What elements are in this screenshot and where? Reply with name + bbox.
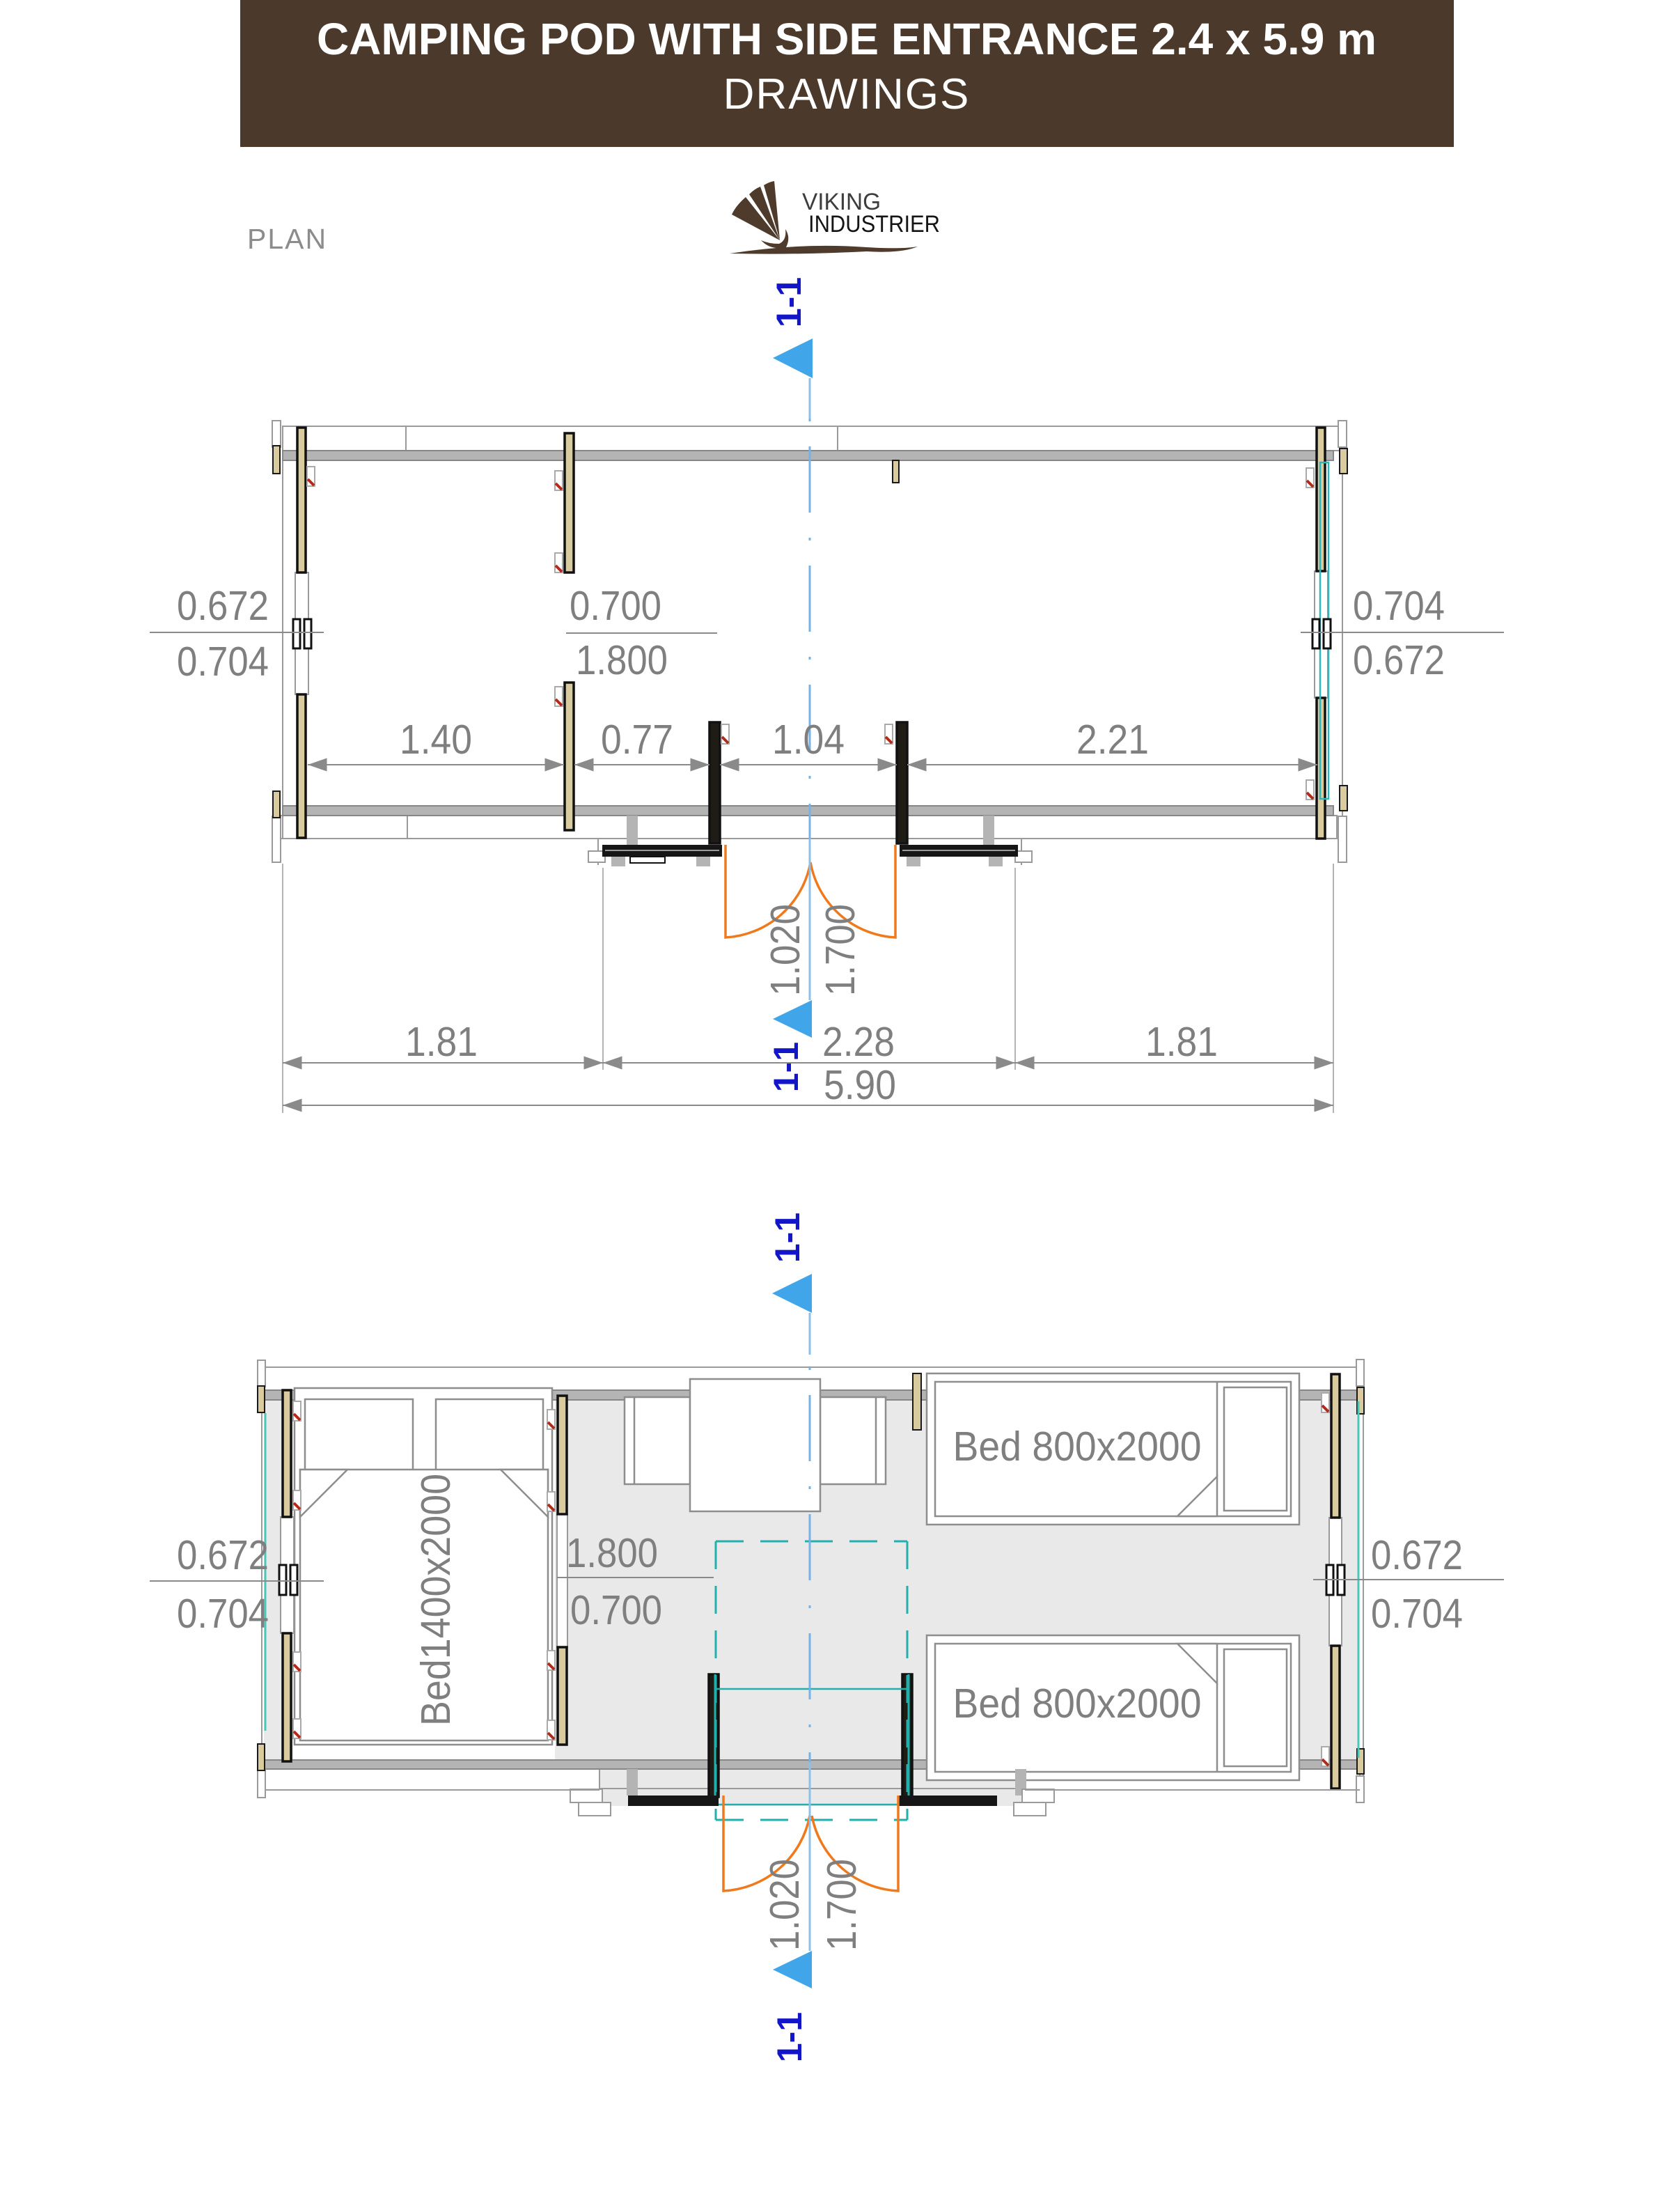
svg-text:2.28: 2.28 [822,1019,895,1065]
svg-text:2.21: 2.21 [1076,717,1149,763]
svg-text:5.90: 5.90 [824,1062,896,1108]
svg-text:1.81: 1.81 [1145,1019,1218,1065]
svg-text:1-1: 1-1 [767,1042,806,1092]
svg-text:0.704: 0.704 [1371,1591,1463,1637]
svg-text:0.704: 0.704 [177,639,269,685]
svg-text:0.672: 0.672 [1353,637,1445,683]
svg-text:0.704: 0.704 [177,1591,269,1637]
svg-text:1.800: 1.800 [566,1530,658,1576]
svg-text:PLAN: PLAN [247,223,327,255]
svg-text:1.800: 1.800 [576,637,668,683]
svg-text:0.672: 0.672 [177,1532,269,1578]
svg-text:Bed 800x2000: Bed 800x2000 [953,1424,1202,1470]
svg-text:CAMPING POD WITH SIDE ENTRANCE: CAMPING POD WITH SIDE ENTRANCE 2.4 x 5.9… [317,14,1377,64]
svg-text:0.672: 0.672 [1371,1532,1463,1578]
svg-text:Bed1400x2000: Bed1400x2000 [413,1474,459,1726]
svg-text:1.020: 1.020 [762,904,808,996]
svg-text:1.700: 1.700 [819,1859,865,1951]
svg-text:1.81: 1.81 [405,1019,478,1065]
svg-text:1-1: 1-1 [770,2012,809,2062]
svg-text:0.700: 0.700 [570,1587,662,1633]
svg-text:0.704: 0.704 [1353,583,1445,629]
svg-text:1-1: 1-1 [768,1213,807,1263]
svg-text:DRAWINGS: DRAWINGS [723,70,971,118]
svg-text:1.40: 1.40 [400,717,472,763]
svg-text:0.700: 0.700 [570,583,661,629]
svg-text:INDUSTRIER: INDUSTRIER [808,211,940,237]
svg-text:0.77: 0.77 [601,717,673,763]
svg-text:Bed 800x2000: Bed 800x2000 [953,1681,1202,1727]
svg-text:1.700: 1.700 [817,904,863,996]
svg-text:1.04: 1.04 [772,717,845,763]
svg-text:1.020: 1.020 [762,1859,808,1951]
svg-text:1-1: 1-1 [769,277,808,327]
svg-text:0.672: 0.672 [177,583,269,629]
